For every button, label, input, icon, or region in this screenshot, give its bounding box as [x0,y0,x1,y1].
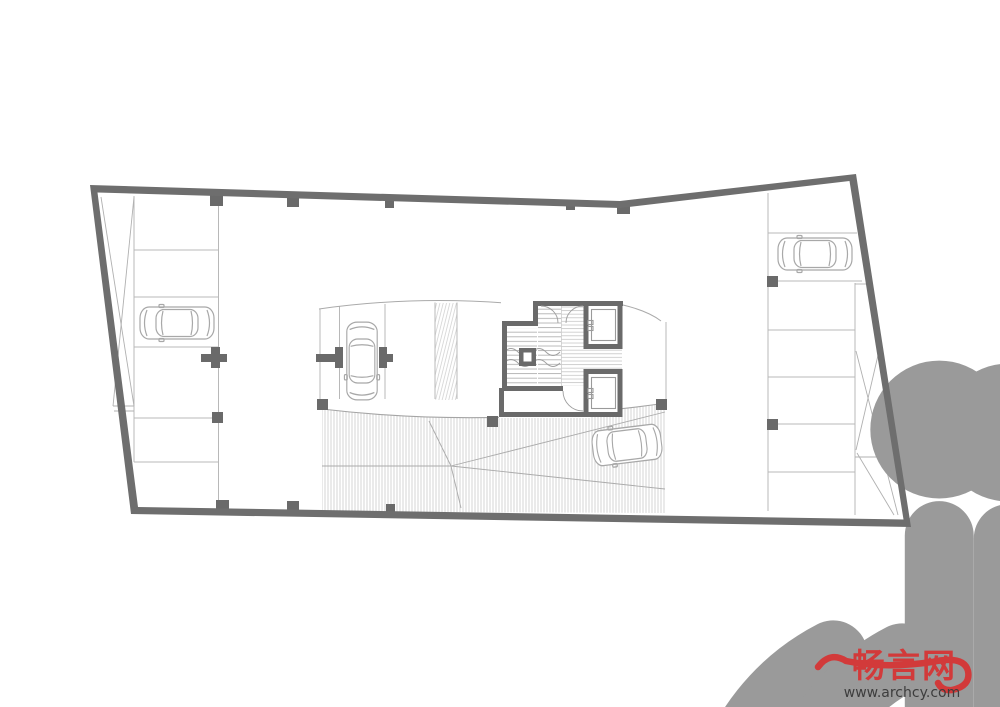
column-square [487,416,498,427]
wall-stub [216,500,229,509]
floor-plan-page: 畅言网 www.archcy.com [0,0,1000,707]
column-square [317,399,328,410]
logo-site-url: www.archcy.com [844,685,960,701]
column-tee [316,354,336,362]
column-tee [335,347,343,368]
car-icon [778,236,852,273]
site-logo: 畅言网 www.archcy.com [814,633,990,703]
elevator-lobby-hatch [585,347,622,371]
wall-stub [287,501,299,510]
column-square [212,412,223,423]
car-icon [344,322,379,400]
wall-stub [287,197,299,207]
floor-plan-drawing [0,0,1000,707]
column-square [767,419,778,430]
elevator-lobby-hatch [561,306,585,386]
median-hatch-strip [436,303,457,400]
column-tee [379,354,393,362]
logo-site-name: 畅言网 [852,646,957,685]
wall-stub [386,504,395,512]
stair-elevator-core [499,300,623,418]
wall-stub [210,195,223,206]
column-square [656,399,667,410]
column-cross [211,347,220,368]
column-square [767,276,778,287]
car-icon [140,305,214,342]
